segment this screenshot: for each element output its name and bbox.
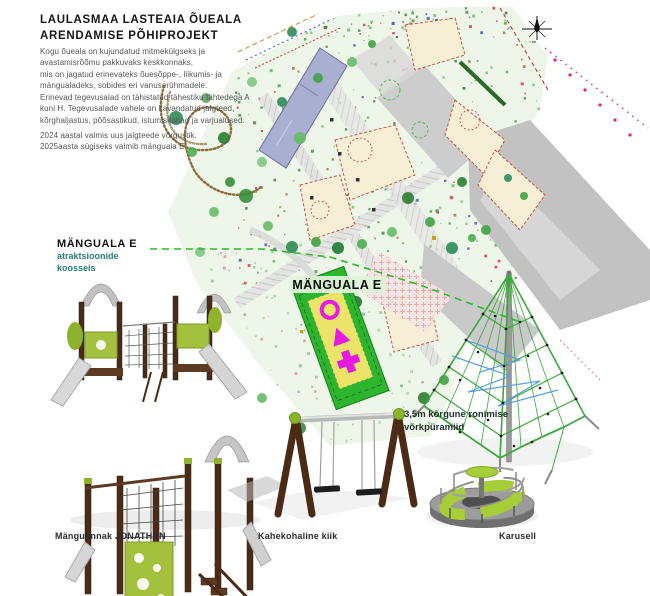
intro-line: Kogu õueala on kujundatud mitmekülgseks …	[40, 46, 290, 57]
play-area-callout: MÄNGUALA E atraktsioonide koosseis	[57, 238, 137, 274]
net-pyramid-label: 3,5m kõrgune ronimise võrkpüramiid	[404, 408, 508, 434]
title-line-2: ARENDAMISE PÕHIPROJEKT	[40, 28, 242, 44]
carousel-render	[426, 464, 538, 528]
timeline-line: 2024 aastal valmis uus jalgteede võrgust…	[40, 130, 290, 141]
net-pyramid-label-line1: 3,5m kõrgune ronimise	[404, 408, 508, 421]
svg-text:MÄNGUALA E: MÄNGUALA E	[292, 277, 381, 292]
map-area-label: MÄNGUALA E	[289, 276, 385, 293]
zones-paragraph: Erinevad tegevusalad on tähistatud tähes…	[40, 92, 290, 126]
net-pyramid-label-line2: võrkpüramiid	[404, 421, 508, 434]
play-area-callout-sub2: koosseis	[57, 262, 137, 274]
swing-label: Kahekohaline kiik	[258, 531, 337, 541]
intro-line: mängualadeks, sobides eri vanuserühmadel…	[40, 80, 290, 91]
zones-line: Erinevad tegevusalad on tähistatud tähes…	[40, 92, 290, 103]
zones-line: kõrghaljastus, põõsastikud, istumiskohad…	[40, 115, 290, 126]
page-title: LAULASMAA LASTEAIA ÕUEALA ARENDAMISE PÕH…	[40, 12, 242, 44]
play-area-callout-heading: MÄNGUALA E	[57, 238, 137, 250]
timeline-paragraph: 2024 aastal valmis uus jalgteede võrgust…	[40, 130, 290, 153]
intro-paragraph: Kogu õueala on kujundatud mitmekülgseks …	[40, 46, 290, 91]
intro-line: mis on jagatud erinevateks õuesõppe-, li…	[40, 69, 290, 80]
zones-line: kuni H. Tegevusalade vahele on kavandatu…	[40, 103, 290, 114]
playhouse-label: Mängulinnak JONATHAN	[55, 531, 166, 541]
project-poster: MÄNGUALA E	[0, 0, 650, 596]
intro-line: avastamisrõõmu pakkuvaks keskkonnaks,	[40, 57, 290, 68]
timeline-line: 2025aasta sügiseks valmib mänguala E.	[40, 141, 290, 152]
carousel-label: Karusell	[499, 531, 536, 541]
title-line-1: LAULASMAA LASTEAIA ÕUEALA	[40, 12, 242, 28]
play-area-callout-sub1: atraktsioonide	[57, 250, 137, 262]
